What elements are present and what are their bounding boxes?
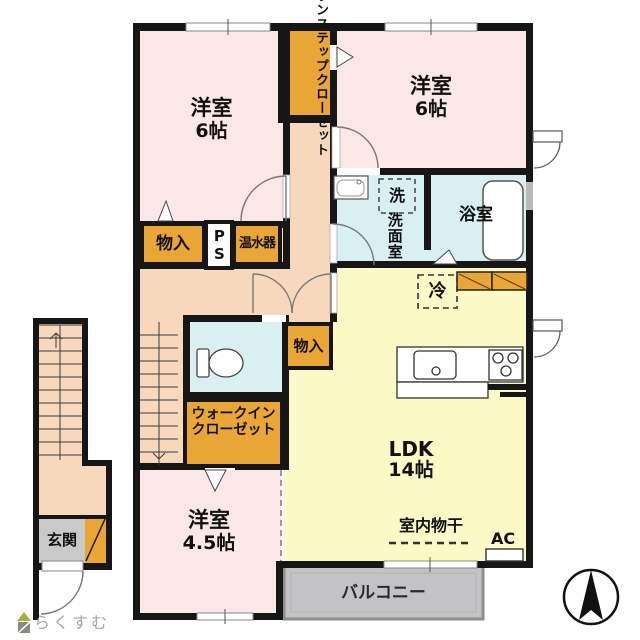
label-ldk: LDK 14帖 (346, 438, 476, 482)
label-walk-in-closet: ウォークイン クローゼット (185, 407, 282, 438)
label-bedroom-s: 洋室 4.5帖 (137, 509, 281, 554)
toilet-fixture (197, 349, 243, 377)
washbasin (334, 176, 368, 199)
bathroom-window (526, 182, 533, 210)
walk-in-closet-line2: クローゼット (185, 423, 282, 439)
watermark-house-icon (17, 612, 31, 633)
label-bedroom-ne: 洋室 6帖 (336, 75, 526, 120)
label-storage-north: 物入 (142, 224, 204, 264)
label-ac: AC (482, 530, 524, 548)
label-balcony: バルコニー (284, 568, 483, 619)
label-indoor-drying: 室内物干 (388, 517, 474, 535)
ldk-name: LDK (346, 438, 476, 460)
walk-in-closet-line1: ウォークイン (185, 407, 282, 423)
bedroom-s-size: 4.5帖 (137, 533, 281, 554)
bedroom-nw-name: 洋室 (140, 97, 283, 121)
label-storage-center: 物入 (286, 324, 331, 368)
label-pipe-space: PS (206, 222, 232, 268)
label-washing-machine: 洗 (379, 180, 415, 212)
bedroom-ne-name: 洋室 (336, 75, 526, 99)
compass-north-arrow (564, 570, 618, 624)
label-washroom: 洗面室 (386, 212, 403, 260)
ac-unit (486, 549, 523, 561)
label-refrigerator: 冷 (418, 276, 457, 307)
label-bedroom-nw: 洋室 6帖 (140, 97, 283, 142)
bedroom-nw-size: 6帖 (140, 121, 283, 142)
label-entrance: 玄関 (39, 517, 85, 563)
casement-windows (533, 131, 562, 357)
watermark-text: らくすむ (34, 614, 110, 632)
ldk-size: 14帖 (346, 460, 476, 481)
label-water-heater: 温水器 (234, 224, 280, 264)
label-one-step-closet: ワンステップクローゼット (287, 31, 331, 115)
floorplan-canvas: 洋室 6帖 洋室 6帖 洋室 4.5帖 LDK 14帖 浴室 洗面室 洗 冷 物… (0, 0, 640, 640)
label-bathroom: 浴室 (428, 206, 524, 225)
bedroom-s-name: 洋室 (137, 509, 281, 533)
bedroom-ne-size: 6帖 (336, 99, 526, 120)
